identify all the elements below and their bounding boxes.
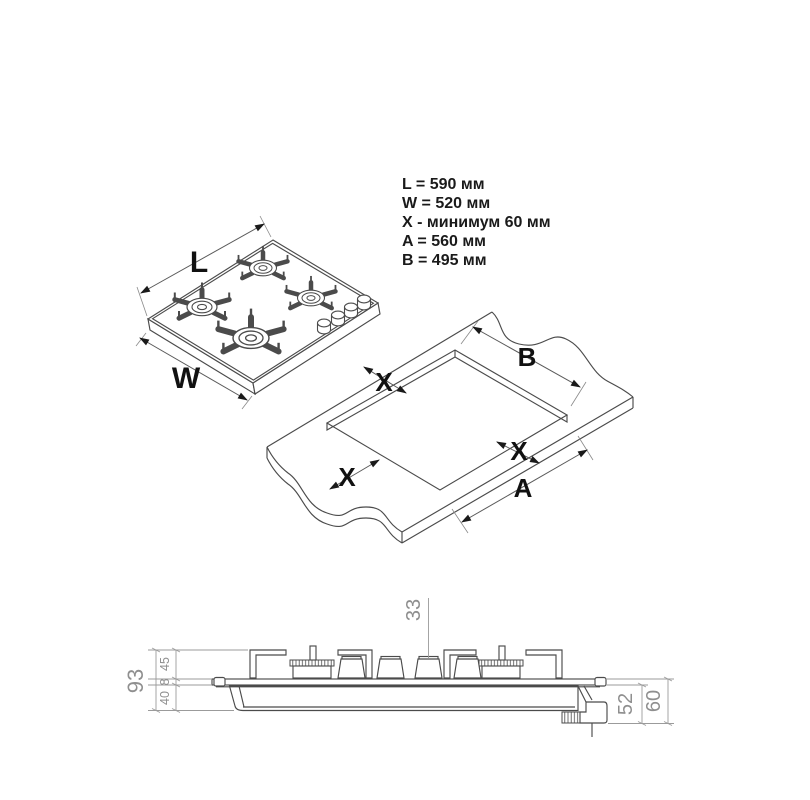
worktop-thickness-edge	[267, 447, 402, 543]
knob-height-dimension: 33	[403, 598, 429, 658]
control-knob-4	[358, 295, 371, 310]
technical-drawing: L W B	[0, 0, 810, 800]
cutout-x-left-dimension: X	[330, 460, 379, 492]
knob-profile	[454, 659, 481, 678]
knob-profile	[415, 659, 442, 678]
glass-right-cap	[595, 678, 606, 687]
knob-row-profile	[338, 657, 481, 679]
right-gas-dimensions: 52 60	[606, 677, 674, 726]
knob-height-value: 33	[403, 599, 425, 621]
glass-left-cap	[214, 678, 225, 687]
glass-thickness-value: 8	[158, 678, 172, 685]
total-height-value: 93	[123, 669, 148, 693]
cutout-b-dimension: B	[461, 321, 586, 406]
above-counter-value: 45	[158, 657, 172, 671]
burner-post	[310, 646, 316, 660]
below-counter-value: 40	[158, 691, 172, 705]
control-knob-1	[318, 319, 331, 334]
trivet-bracket	[526, 650, 562, 678]
side-elevation-view: 33 93 45 8 40	[123, 598, 674, 737]
cutout-a-label: A	[514, 473, 533, 503]
burner-post	[499, 646, 505, 660]
worktop-bottomright-edge	[402, 397, 633, 543]
worktop-bottomleft-torn-edge	[267, 447, 402, 532]
cutout-b-label: B	[518, 342, 537, 372]
trivet-bracket	[250, 650, 286, 678]
knob-profile	[377, 659, 404, 678]
cutout-x-right-dimension: X	[497, 436, 539, 466]
knob-profile	[338, 659, 365, 678]
gas-bracket	[578, 686, 592, 702]
hob-isometric-view: L W	[136, 216, 380, 409]
control-knob-2	[332, 311, 345, 326]
burner-crown	[290, 660, 334, 666]
hob-length-label: L	[190, 246, 208, 279]
gas-elbow	[580, 702, 607, 723]
cutout-x-right-label: X	[510, 436, 528, 466]
glass-panel	[212, 679, 604, 685]
gas-connector-value: 52	[615, 693, 637, 715]
cutout-x-left-label: X	[338, 462, 356, 492]
gas-thread-nipple	[562, 712, 580, 723]
control-knob-3	[345, 303, 358, 318]
burner-crown	[479, 660, 523, 666]
cutout-x-top-label: X	[375, 367, 393, 397]
installation-drawing-page: L = 590 мм W = 520 мм X - минимум 60 мм …	[0, 0, 810, 800]
gas-connector-total-value: 60	[643, 690, 665, 712]
burner-body	[293, 666, 331, 678]
hob-width-label: W	[172, 362, 201, 395]
burner-body	[482, 666, 520, 678]
